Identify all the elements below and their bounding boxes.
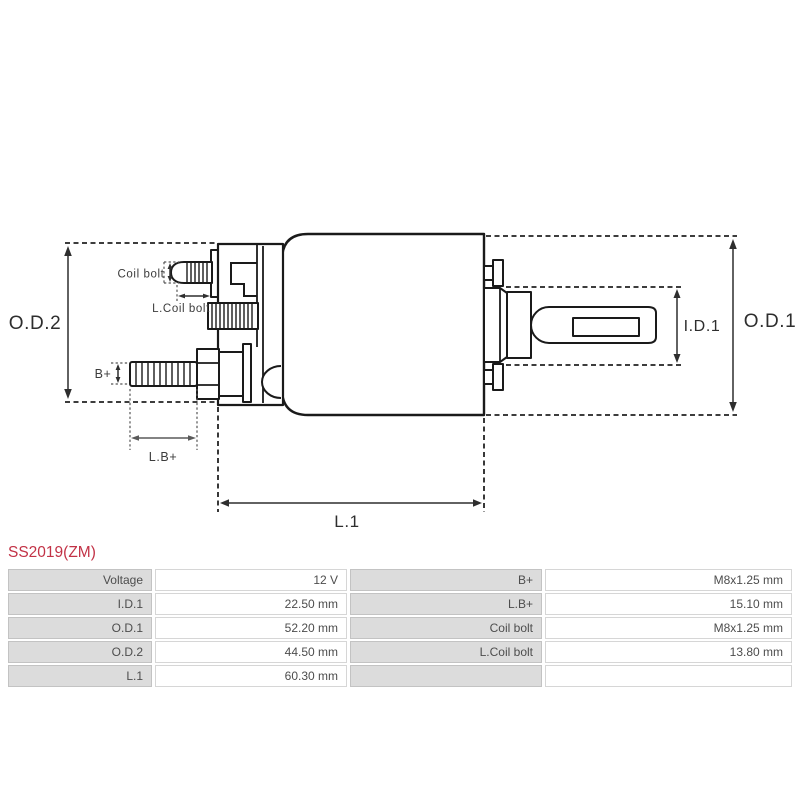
solenoid-technical-drawing: O.D.2 O.D.1 I.D.1 L.1: [0, 0, 800, 545]
coil-bolt-terminal: [171, 262, 212, 283]
b-plus-terminal: [130, 344, 251, 402]
spec-label-cell: O.D.1: [8, 617, 152, 639]
spec-value-cell: 12 V: [155, 569, 347, 591]
spec-label-cell: Voltage: [8, 569, 152, 591]
end-collar: [507, 292, 531, 358]
b-plus-washer: [243, 344, 251, 402]
spec-value-cell: 44.50 mm: [155, 641, 347, 663]
b-plus-bolt: [130, 362, 197, 386]
spec-value-cell: [545, 665, 792, 687]
od1-label: O.D.1: [744, 311, 797, 332]
plunger-assembly: [484, 260, 656, 390]
rear-tab-bottom-small: [484, 370, 493, 384]
lb-plus-label: L.B+: [149, 450, 177, 464]
id1-label: I.D.1: [684, 318, 721, 335]
spec-value-cell: 60.30 mm: [155, 665, 347, 687]
cylinder-outline: [282, 234, 484, 415]
spec-label-cell: I.D.1: [8, 593, 152, 615]
dim-l-coil-bolt: L.Coil bolt: [152, 285, 210, 315]
end-plate: [484, 288, 507, 362]
spec-label-cell: L.B+: [350, 593, 542, 615]
dim-coil-bolt: Coil bolt: [118, 262, 179, 283]
product-spec-page: O.D.2 O.D.1 I.D.1 L.1: [0, 0, 800, 800]
spec-value-cell: 15.10 mm: [545, 593, 792, 615]
b-plus-seat: [219, 352, 243, 396]
b-plus-label: B+: [95, 367, 112, 381]
l1-label: L.1: [334, 512, 359, 531]
spec-value-cell: M8x1.25 mm: [545, 617, 792, 639]
rear-tab-bottom: [493, 364, 503, 390]
od2-label: O.D.2: [9, 313, 62, 334]
spec-label-cell: O.D.2: [8, 641, 152, 663]
spec-label-cell: Coil bolt: [350, 617, 542, 639]
spec-value-cell: M8x1.25 mm: [545, 569, 792, 591]
solenoid-body: [282, 234, 484, 415]
spec-value-cell: 52.20 mm: [155, 617, 347, 639]
spec-label-cell: B+: [350, 569, 542, 591]
spec-value-cell: 22.50 mm: [155, 593, 347, 615]
dim-b-plus: B+: [95, 363, 129, 384]
rear-tab-top: [493, 260, 503, 286]
rear-tab-top-small: [484, 266, 493, 280]
spec-value-cell: 13.80 mm: [545, 641, 792, 663]
shaft-slot: [573, 318, 639, 336]
coil-bolt-label: Coil bolt: [118, 269, 165, 281]
dim-lb-plus: L.B+: [130, 389, 197, 464]
dim-l1: L.1: [218, 407, 484, 531]
spec-label-cell: [350, 665, 542, 687]
l-coil-bolt-label: L.Coil bolt: [152, 303, 210, 315]
spec-label-cell: L.Coil bolt: [350, 641, 542, 663]
b-plus-hex-nut: [197, 349, 219, 399]
spec-table: Voltage 12 V B+ M8x1.25 mm I.D.1 22.50 m…: [8, 569, 792, 687]
spec-label-cell: L.1: [8, 665, 152, 687]
part-number: SS2019(ZM): [8, 544, 96, 562]
